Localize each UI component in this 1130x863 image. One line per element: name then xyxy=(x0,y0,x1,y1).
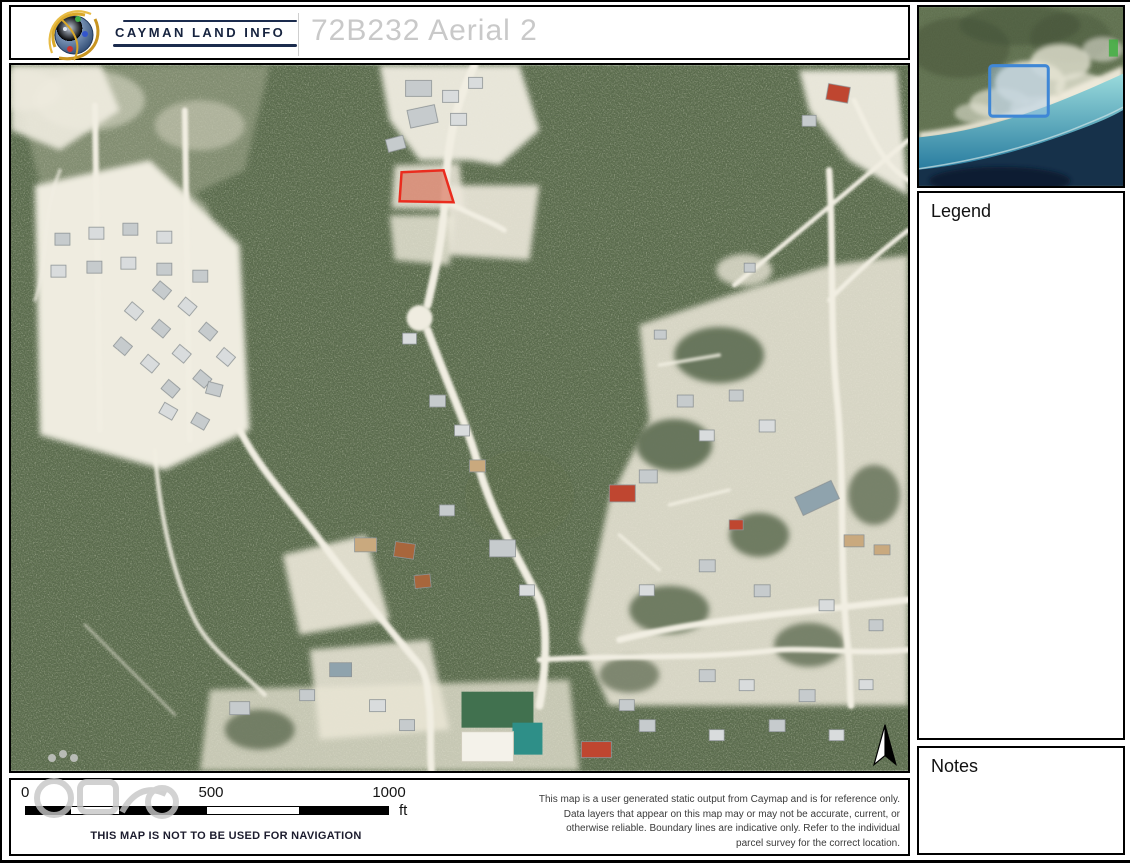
scale-unit: ft xyxy=(399,802,407,819)
map-document-page: CAYMAN LAND INFO 72B232 Aerial 2 xyxy=(0,0,1130,863)
navigation-warning: THIS MAP IS NOT TO BE USED FOR NAVIGATIO… xyxy=(11,830,441,842)
scale-tick-end: 1000 xyxy=(363,784,415,801)
notes-title: Notes xyxy=(931,756,1111,777)
recreation-area xyxy=(461,692,542,762)
aerial-map xyxy=(11,65,908,771)
aerial-map-frame xyxy=(9,63,910,773)
footer-bar: 0 500 1000 ft THIS MAP IS NOT TO BE USED… xyxy=(9,778,910,856)
page-title: 72B232 Aerial 2 xyxy=(311,14,538,48)
scale-tick-mid: 500 xyxy=(189,784,233,801)
cayman-land-info-logo-icon xyxy=(45,7,109,62)
header-bar: CAYMAN LAND INFO 72B232 Aerial 2 xyxy=(9,5,910,60)
brand-block: CAYMAN LAND INFO xyxy=(111,7,301,62)
scale-tick-start: 0 xyxy=(21,784,29,801)
cul-de-sac xyxy=(407,305,433,331)
highlighted-parcel xyxy=(400,170,454,202)
overview-map xyxy=(919,7,1123,186)
scale-bar-group: 0 500 1000 ft THIS MAP IS NOT TO BE USED… xyxy=(11,780,441,854)
brand-rule-bottom xyxy=(113,44,297,47)
notes-panel: Notes xyxy=(917,746,1125,855)
overview-map-frame xyxy=(917,5,1125,188)
brand-rule-top xyxy=(123,20,297,22)
scale-bar xyxy=(25,806,389,815)
legend-panel: Legend xyxy=(917,191,1125,740)
brand-name: CAYMAN LAND INFO xyxy=(115,25,305,40)
disclaimer-text: This map is a user generated static outp… xyxy=(538,793,900,851)
header-divider xyxy=(298,13,299,56)
map-extent-indicator xyxy=(990,66,1049,116)
legend-title: Legend xyxy=(931,201,1111,222)
